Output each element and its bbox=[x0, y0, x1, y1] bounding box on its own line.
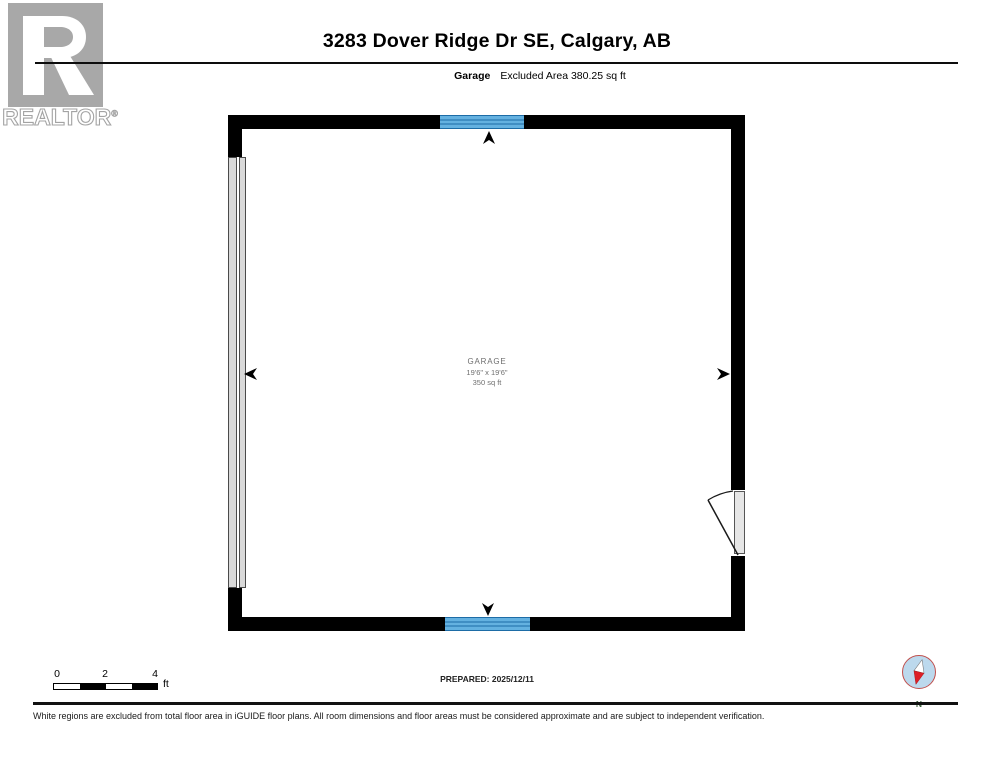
realtor-logo bbox=[8, 3, 103, 107]
scale-segment bbox=[54, 684, 80, 689]
arrow-down-icon bbox=[482, 603, 494, 616]
scale-bar bbox=[53, 683, 158, 690]
footer-divider bbox=[33, 702, 958, 705]
floor-plan-page: REALTOR® 3283 Dover Ridge Dr SE, Calgary… bbox=[0, 0, 994, 768]
subheader: GarageExcluded Area 380.25 sq ft bbox=[0, 70, 994, 82]
window-top bbox=[440, 115, 524, 129]
floor-label: Garage bbox=[454, 70, 490, 82]
door-swing-arc bbox=[700, 485, 750, 560]
arrow-left-icon bbox=[244, 368, 257, 380]
excluded-area-note: Excluded Area 380.25 sq ft bbox=[500, 70, 626, 82]
room-name: GARAGE bbox=[417, 357, 557, 368]
registered-mark: ® bbox=[111, 108, 118, 118]
arrow-up-icon bbox=[483, 131, 495, 144]
header-divider bbox=[35, 62, 958, 64]
scale-segment bbox=[80, 684, 106, 689]
window-bottom bbox=[445, 617, 530, 631]
compass-needle-icon bbox=[903, 656, 935, 688]
disclaimer-text: White regions are excluded from total fl… bbox=[33, 711, 963, 721]
room-dimensions: 19'6" x 19'6" bbox=[417, 368, 557, 378]
prepared-date: PREPARED: 2025/12/11 bbox=[0, 674, 984, 684]
garage-door-panel-outer bbox=[228, 157, 237, 588]
scale-segment bbox=[106, 684, 132, 689]
room-area: 350 sq ft bbox=[417, 378, 557, 388]
page-title: 3283 Dover Ridge Dr SE, Calgary, AB bbox=[0, 30, 994, 53]
realtor-wordmark-text: REALTOR bbox=[2, 104, 111, 130]
arrow-right-icon bbox=[717, 368, 730, 380]
compass bbox=[902, 655, 936, 689]
room-label: GARAGE 19'6" x 19'6" 350 sq ft bbox=[417, 357, 557, 388]
realtor-wordmark: REALTOR® bbox=[0, 104, 120, 131]
scale-segment bbox=[132, 684, 157, 689]
